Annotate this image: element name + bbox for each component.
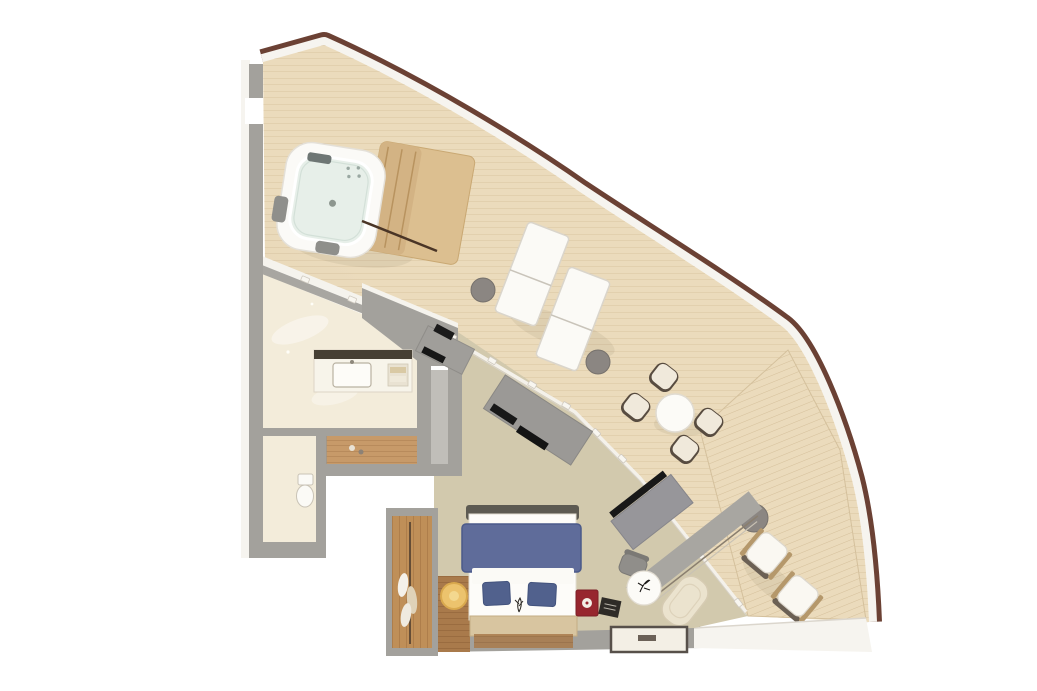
shower-teak-floor (326, 434, 420, 466)
vanity-mirror (314, 350, 412, 359)
round-side-table-2 (586, 350, 610, 374)
floor-plan-canvas (0, 0, 1037, 691)
dining-table (656, 394, 694, 432)
hot-tub-water (287, 153, 375, 248)
toilet (297, 474, 314, 507)
pouf-center (449, 591, 459, 601)
bed-pillow-left (482, 581, 510, 605)
bed-pillow-right (527, 582, 556, 606)
floor-plan-svg (0, 0, 1037, 691)
floor-sparkle-2 (311, 303, 314, 306)
wall-gap-shadow (431, 370, 448, 470)
sink (333, 363, 371, 387)
bed-sheet-fold (472, 568, 574, 584)
wardrobe (386, 508, 438, 656)
round-side-table-1 (471, 278, 495, 302)
rug-item (638, 635, 656, 641)
toilet-room-east-wall (316, 436, 326, 548)
headboard-wall-texture (474, 634, 573, 648)
hot-tub-area (267, 138, 476, 266)
headboard (470, 616, 577, 636)
west-wall-notch (245, 98, 263, 124)
floor-sparkle (286, 350, 289, 353)
bed-duvet (462, 524, 581, 572)
west-outer-white-strip (241, 60, 250, 558)
cabinet-knob-dot (586, 602, 589, 605)
bathroom-south-wall (262, 428, 418, 436)
faucet (350, 360, 354, 364)
shower-bottle (349, 445, 355, 451)
living-west-wall (448, 360, 462, 472)
west-wall (249, 64, 263, 558)
shower-bottle-2 (359, 450, 364, 455)
wardrobe-floor (392, 516, 432, 648)
shower-south-wall (326, 464, 462, 476)
towel-2 (390, 376, 406, 382)
towel (390, 367, 406, 373)
